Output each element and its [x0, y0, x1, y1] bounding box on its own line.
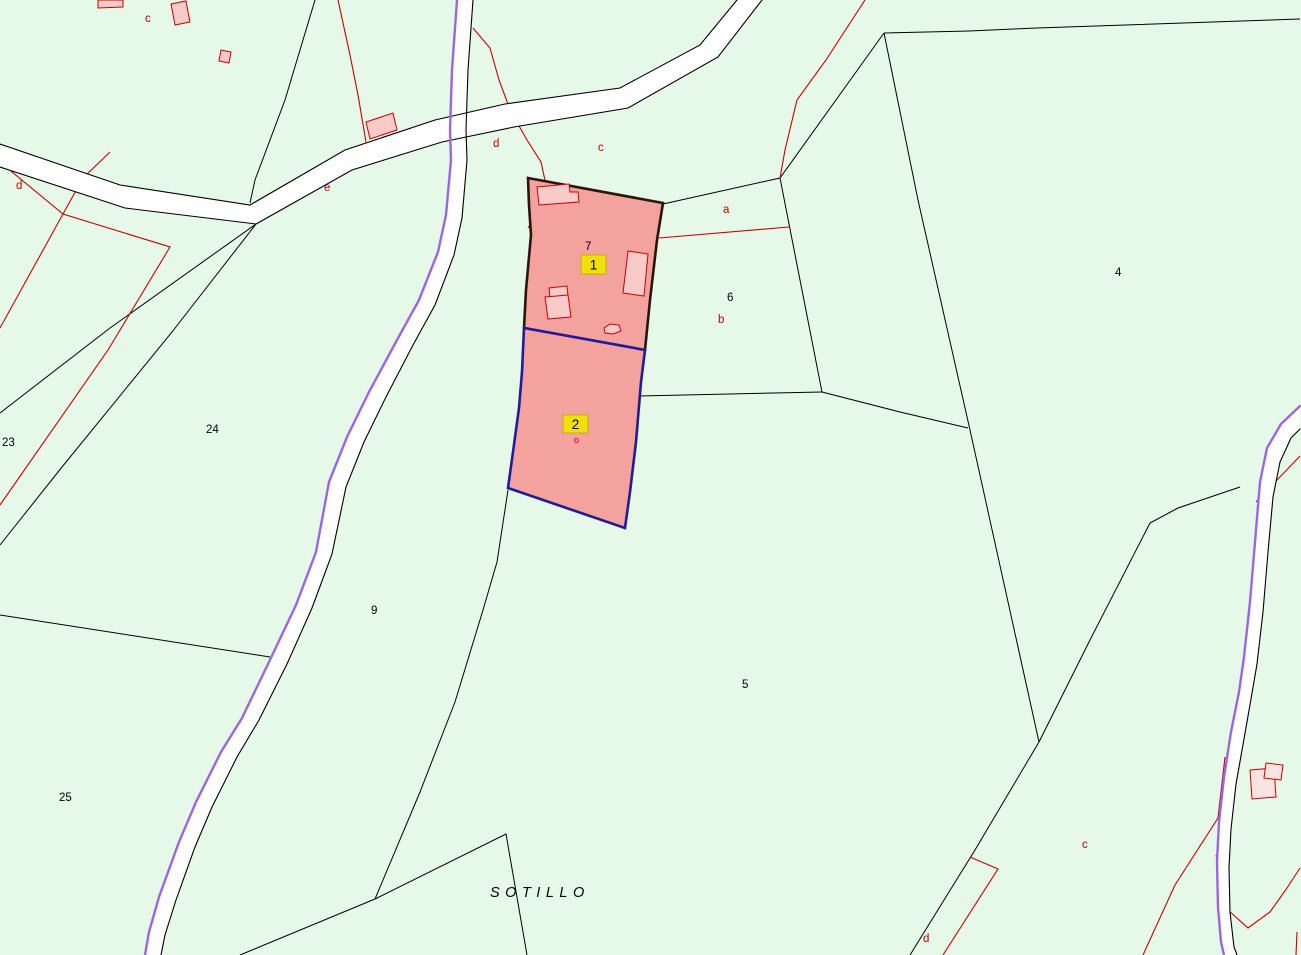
subparcel-letter-label: d [16, 180, 22, 192]
building-footprint [1264, 763, 1283, 780]
subparcel-letter-label: d [493, 138, 499, 150]
parcel-marker-number-2: 2 [572, 417, 580, 432]
parcel-marker-1[interactable]: 1 [581, 255, 606, 274]
building-footprint [98, 0, 123, 8]
subparcel-letter-label: b [718, 314, 724, 326]
parcel-marker-2[interactable]: 2 [563, 415, 588, 433]
building-footprint [219, 50, 231, 63]
building-footprint [545, 295, 571, 319]
parcel-number-label: 9 [371, 605, 377, 617]
building-footprint [171, 1, 190, 25]
parcel-number-label: 6 [727, 292, 733, 304]
place-name-label: SOTILLO [490, 885, 590, 901]
subparcel-letter-label: c [1082, 839, 1088, 851]
subparcel-letter-label: c [145, 13, 151, 25]
subparcel-letter-label: e [324, 182, 330, 194]
parcel-number-label: 5 [742, 679, 748, 691]
parcel-number-label: 4 [1115, 267, 1122, 279]
subparcel-letter-label: d [923, 933, 929, 945]
parcel-marker-number-1: 1 [590, 258, 598, 273]
parcel-number-label: 7 [585, 241, 591, 253]
subparcel-letter-label: c [598, 142, 604, 154]
parcel-number-label: 24 [206, 424, 219, 436]
subparcel-letter-label: o [574, 435, 579, 445]
cadastral-map-viewport[interactable]: 23249255467abcdedccdo12SOTILLO [0, 0, 1301, 955]
subparcel-letter-label: a [723, 204, 730, 216]
parcel-number-label: 25 [59, 792, 72, 804]
parcel-number-label: 23 [2, 437, 15, 449]
building-footprint [623, 251, 648, 296]
cadastral-map[interactable]: 23249255467abcdedccdo12SOTILLO [0, 0, 1301, 955]
